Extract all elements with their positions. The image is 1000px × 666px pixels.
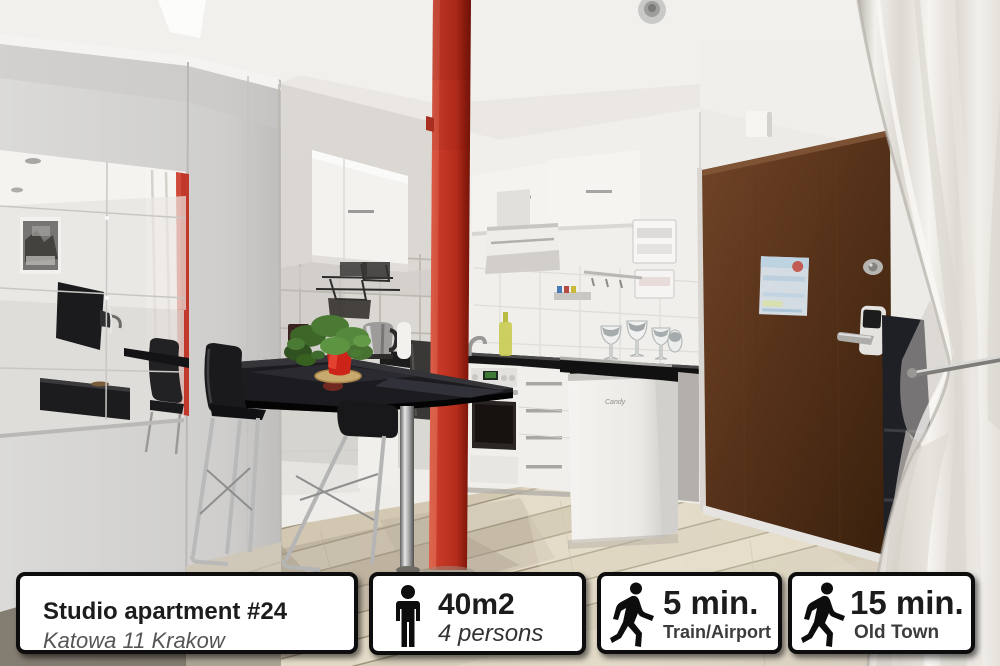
svg-text:Candy: Candy: [605, 399, 626, 406]
